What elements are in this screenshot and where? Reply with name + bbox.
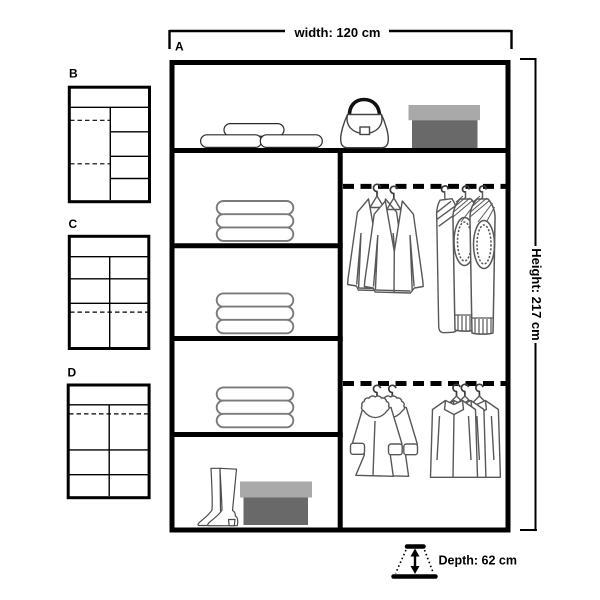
svg-text:C: C xyxy=(69,217,78,231)
svg-text:A: A xyxy=(175,40,184,54)
svg-text:Height: 217 cm: Height: 217 cm xyxy=(529,248,544,340)
svg-text:B: B xyxy=(69,67,78,81)
svg-text:D: D xyxy=(68,366,77,380)
svg-text:width: 120 cm: width: 120 cm xyxy=(294,25,381,40)
svg-text:Depth: 62 cm: Depth: 62 cm xyxy=(439,554,518,568)
